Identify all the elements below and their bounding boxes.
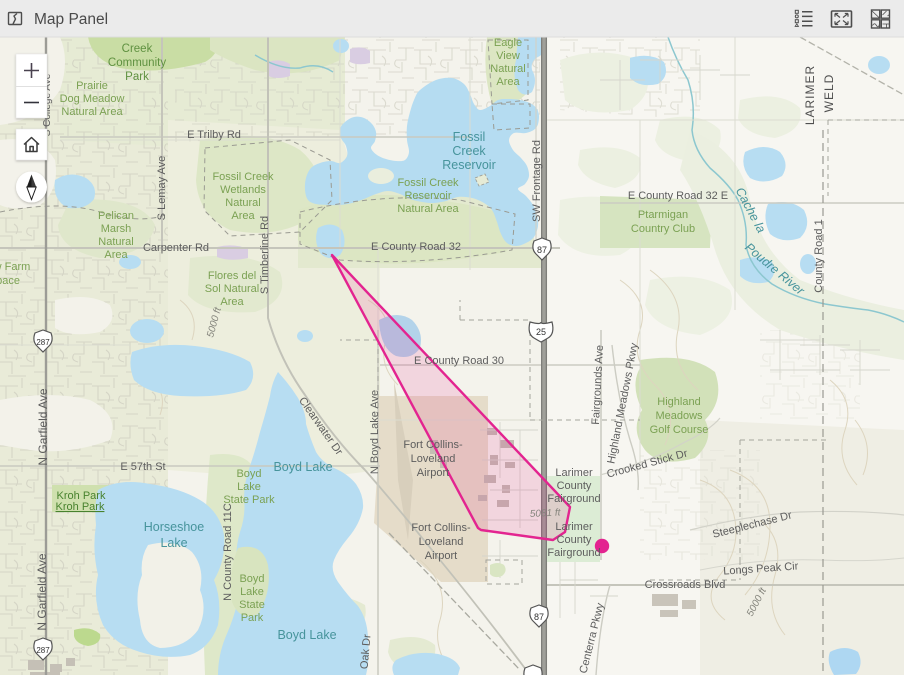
- svg-text:25: 25: [536, 327, 546, 337]
- svg-text:Area: Area: [220, 296, 244, 308]
- svg-text:87: 87: [534, 612, 544, 622]
- svg-text:Lake: Lake: [237, 481, 261, 493]
- svg-text:N Garfield Ave: N Garfield Ave: [35, 553, 49, 630]
- svg-text:Ptarmigan: Ptarmigan: [638, 209, 688, 221]
- svg-text:Natural: Natural: [225, 197, 260, 209]
- svg-text:State: State: [239, 599, 265, 611]
- svg-text:Country Club: Country Club: [631, 223, 695, 235]
- svg-text:87: 87: [537, 245, 547, 255]
- svg-text:S Timberline Rd: S Timberline Rd: [259, 216, 271, 294]
- svg-text:5081 ft: 5081 ft: [530, 507, 562, 520]
- svg-text:WELD: WELD: [822, 74, 836, 113]
- svg-text:Natural: Natural: [490, 63, 525, 75]
- svg-text:Boyd: Boyd: [239, 573, 264, 585]
- svg-text:Airport: Airport: [425, 550, 457, 562]
- svg-text:Fairground: Fairground: [547, 493, 600, 505]
- svg-text:County: County: [557, 534, 592, 546]
- svg-text:Boyd Lake: Boyd Lake: [277, 628, 336, 642]
- svg-text:Lake: Lake: [160, 536, 187, 550]
- svg-text:Marsh: Marsh: [101, 223, 132, 235]
- svg-text:E Trilby Rd: E Trilby Rd: [187, 129, 241, 141]
- svg-text:Dog Meadow: Dog Meadow: [60, 93, 125, 105]
- svg-text:Area: Area: [231, 210, 255, 222]
- svg-text:Loveland: Loveland: [419, 536, 464, 548]
- svg-text:Reservoir: Reservoir: [442, 158, 496, 172]
- svg-text:LARIMER: LARIMER: [803, 65, 817, 125]
- svg-text:Loveland: Loveland: [411, 453, 456, 465]
- svg-text:Fossil Creek: Fossil Creek: [397, 177, 459, 189]
- svg-text:E County Road 32: E County Road 32: [371, 241, 461, 253]
- svg-text:Fossil Creek: Fossil Creek: [212, 171, 274, 183]
- svg-text:Creek: Creek: [452, 144, 486, 158]
- svg-text:Airport: Airport: [417, 467, 449, 479]
- svg-text:County Road 1: County Road 1: [813, 219, 825, 292]
- svg-text:Boyd Lake: Boyd Lake: [273, 460, 332, 474]
- svg-text:E County Road 32 E: E County Road 32 E: [628, 190, 728, 202]
- svg-text:Area: Area: [104, 249, 128, 261]
- svg-text:Golf Course: Golf Course: [650, 424, 709, 436]
- svg-text:Park: Park: [125, 71, 149, 83]
- svg-text:Natural Area: Natural Area: [61, 106, 123, 118]
- svg-text:Area: Area: [496, 76, 520, 88]
- svg-text:Creek: Creek: [122, 43, 153, 55]
- svg-text:Highland: Highland: [657, 396, 700, 408]
- svg-text:Community: Community: [108, 57, 166, 69]
- svg-text:Map Panel: Map Panel: [34, 11, 108, 28]
- svg-text:N County Road 11C: N County Road 11C: [222, 503, 234, 601]
- svg-text:Horseshoe: Horseshoe: [144, 520, 204, 534]
- svg-text:Sol Natural: Sol Natural: [205, 283, 259, 295]
- svg-text:Pelican: Pelican: [98, 210, 134, 222]
- svg-text:Crossroads Blvd: Crossroads Blvd: [645, 579, 726, 591]
- svg-text:Eagle: Eagle: [494, 37, 522, 49]
- svg-text:pace: pace: [0, 275, 20, 287]
- svg-text:Natural: Natural: [98, 236, 133, 248]
- svg-text:287: 287: [36, 646, 50, 655]
- svg-text:Meadows: Meadows: [655, 410, 703, 422]
- svg-text:Fossil: Fossil: [453, 130, 486, 144]
- svg-text:Fort Collins-: Fort Collins-: [403, 439, 463, 451]
- svg-text:Larimer: Larimer: [555, 467, 593, 479]
- svg-text:Flores del: Flores del: [208, 270, 256, 282]
- svg-text:Kroh Park: Kroh Park: [56, 501, 105, 513]
- svg-text:N Boyd Lake Ave: N Boyd Lake Ave: [369, 390, 381, 474]
- svg-text:Boyd: Boyd: [236, 468, 261, 480]
- svg-text:SW Frontage Rd: SW Frontage Rd: [531, 140, 543, 222]
- svg-text:S Lemay Ave: S Lemay Ave: [156, 156, 168, 221]
- svg-text:w Farm: w Farm: [0, 261, 30, 273]
- svg-text:Carpenter Rd: Carpenter Rd: [143, 242, 209, 254]
- svg-text:E 57th St: E 57th St: [120, 461, 165, 473]
- svg-text:Fairground: Fairground: [547, 547, 600, 559]
- svg-text:287: 287: [36, 338, 50, 347]
- svg-text:E County Road 30: E County Road 30: [414, 355, 504, 367]
- svg-text:View: View: [496, 50, 520, 62]
- svg-text:County: County: [557, 480, 592, 492]
- svg-text:Wetlands: Wetlands: [220, 184, 266, 196]
- svg-text:Natural Area: Natural Area: [397, 203, 459, 215]
- svg-text:Larimer: Larimer: [555, 521, 593, 533]
- svg-text:Park: Park: [241, 612, 264, 624]
- svg-text:Lake: Lake: [240, 586, 264, 598]
- svg-text:Reservoir: Reservoir: [404, 190, 451, 202]
- svg-text:N Garfield Ave: N Garfield Ave: [36, 388, 50, 465]
- svg-text:Prairie: Prairie: [76, 80, 108, 92]
- svg-text:Fort Collins-: Fort Collins-: [411, 522, 471, 534]
